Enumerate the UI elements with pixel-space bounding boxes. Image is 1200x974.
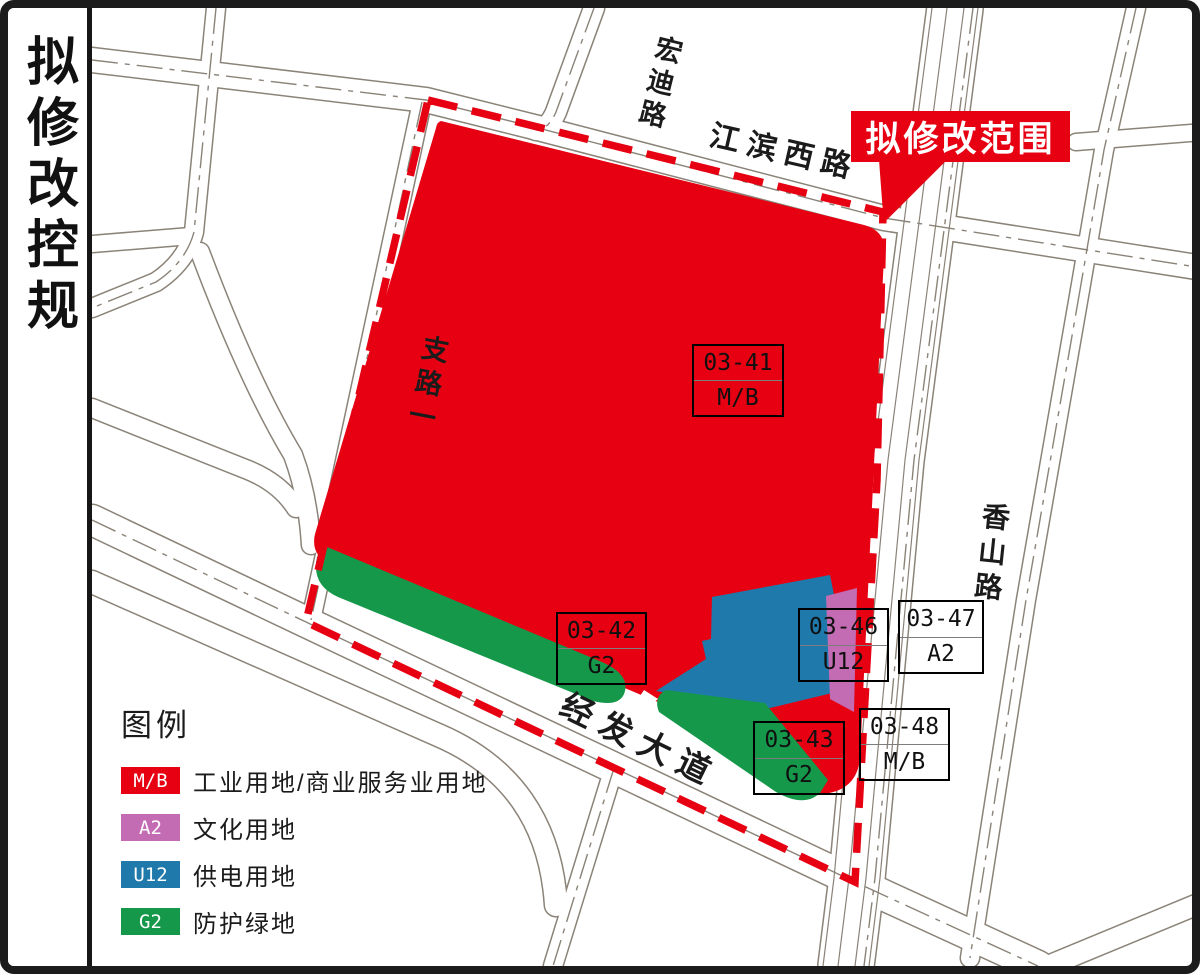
legend-row-u12: U12 供电用地 xyxy=(121,861,488,888)
legend-swatch-g2: G2 xyxy=(121,908,180,935)
plan-map-frame: 03-41 M/B 03-42 G2 03-46 U12 03-47 A2 03… xyxy=(0,0,1200,974)
road-br xyxy=(1048,902,1200,966)
parcel-label-03-43: 03-43 G2 xyxy=(753,721,845,795)
parcel-code: 03-48 xyxy=(861,710,948,745)
legend-row-a2: A2 文化用地 xyxy=(121,814,488,841)
legend-label-u12: 供电用地 xyxy=(193,857,297,892)
legend-title: 图例 xyxy=(121,700,488,745)
legend-row-g2: G2 防护绿地 xyxy=(121,908,488,935)
parcel-label-03-41: 03-41 M/B xyxy=(692,344,784,417)
parcel-use: G2 xyxy=(558,649,645,683)
parcel-use: M/B xyxy=(694,381,782,415)
parcel-use: M/B xyxy=(861,745,948,779)
sheet-title-strip: 拟修改控规 xyxy=(8,8,92,966)
parcel-code: 03-43 xyxy=(755,723,843,759)
legend-row-mb: M/B 工业用地/商业服务业用地 xyxy=(121,767,488,794)
parcel-code: 03-42 xyxy=(558,614,645,649)
modification-scope-banner: 拟修改范围 xyxy=(851,111,1070,162)
legend-label-a2: 文化用地 xyxy=(193,810,297,845)
legend: 图例 M/B 工业用地/商业服务业用地 A2 文化用地 U12 供电用地 G2 … xyxy=(121,700,488,955)
parcel-code: 03-46 xyxy=(800,610,887,646)
parcel-label-03-47: 03-47 A2 xyxy=(898,600,984,674)
legend-label-g2: 防护绿地 xyxy=(193,904,297,939)
road-right xyxy=(970,290,1080,958)
parcel-code: 03-47 xyxy=(900,602,982,638)
parcel-label-03-46: 03-46 U12 xyxy=(798,608,889,682)
parcel-use: A2 xyxy=(900,638,982,673)
legend-swatch-a2: A2 xyxy=(121,814,180,841)
parcel-code: 03-41 xyxy=(694,346,782,381)
sheet-title: 拟修改控规 xyxy=(22,34,74,966)
road-ne2 xyxy=(1076,132,1200,142)
road-nw2 xyxy=(92,236,191,244)
parcel-use: G2 xyxy=(755,759,843,794)
legend-swatch-u12: U12 xyxy=(121,861,180,888)
legend-label-mb: 工业用地/商业服务业用地 xyxy=(193,763,488,798)
parcel-use: U12 xyxy=(800,646,887,681)
legend-swatch-mb: M/B xyxy=(121,767,180,794)
parcel-label-03-48: 03-48 M/B xyxy=(859,708,950,781)
parcel-label-03-42: 03-42 G2 xyxy=(556,612,647,685)
banner-label: 拟修改范围 xyxy=(865,111,1055,162)
